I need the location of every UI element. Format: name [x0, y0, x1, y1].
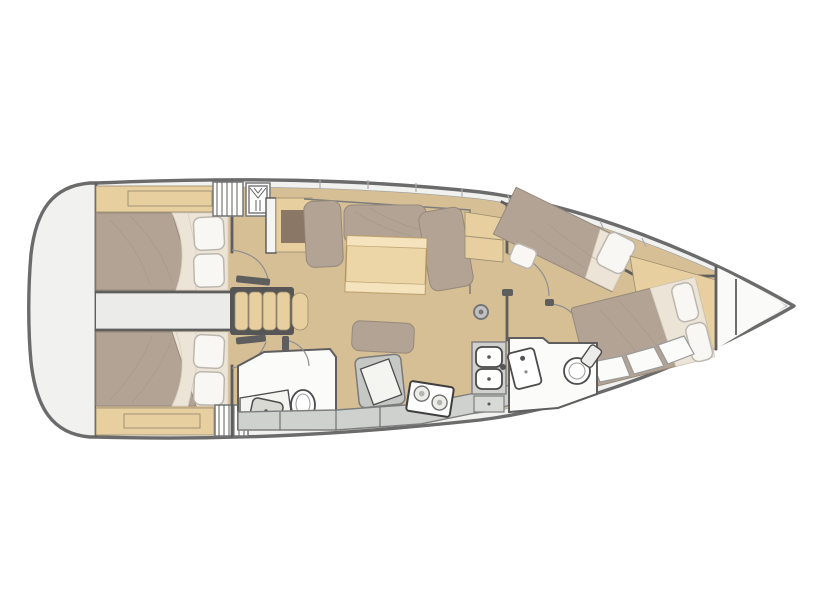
companionway-steps: [230, 287, 308, 335]
step-tread: [263, 292, 276, 330]
pillow: [193, 334, 225, 369]
pillow: [193, 253, 224, 287]
sideboard: [465, 212, 503, 262]
galley-locker: [474, 396, 504, 412]
forward-head: [507, 338, 603, 412]
anchor-locker: [716, 267, 786, 349]
cockpit-hatch-area: [213, 182, 270, 216]
mast-post: [474, 305, 488, 319]
pillow: [193, 371, 224, 405]
step-tread: [249, 292, 262, 330]
sofa-cushion: [303, 200, 343, 268]
step-tread: [235, 292, 248, 330]
floor-plan-canvas: [0, 0, 816, 612]
aft-corridor: [96, 292, 232, 330]
salon-table: [345, 236, 427, 295]
bulkhead-panel: [266, 198, 276, 253]
yacht-floor-plan: [0, 0, 816, 612]
step-tread: [277, 292, 290, 330]
step-landing: [292, 293, 308, 330]
pillow: [193, 216, 225, 251]
double-sink: [472, 342, 506, 394]
nav-seat: [351, 320, 414, 353]
hull-shelf: [96, 408, 214, 435]
stove: [406, 381, 454, 418]
